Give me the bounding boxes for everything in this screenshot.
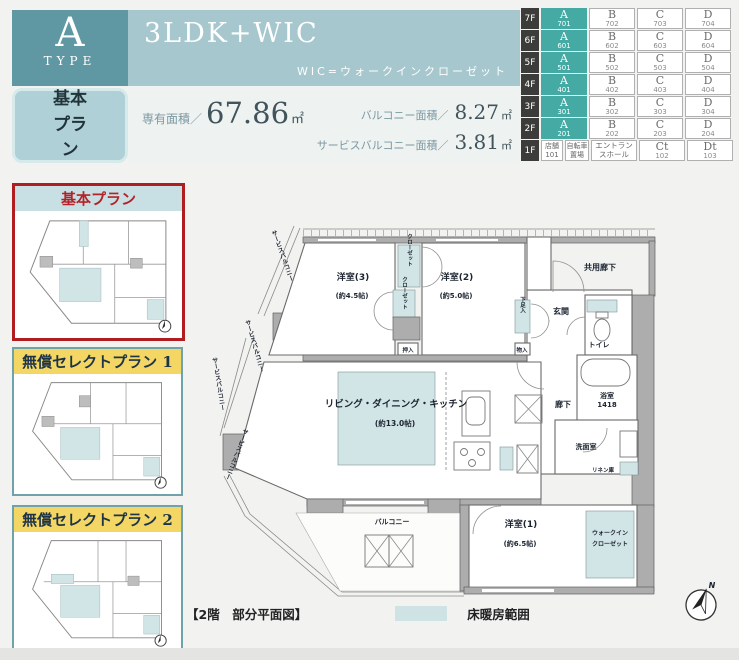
floor-row-6f: 6F A601 B602 C603 D604 xyxy=(521,30,733,51)
floor-label: 2F xyxy=(521,118,539,139)
unit-cell-a301[interactable]: A301 xyxy=(541,96,587,117)
exclusive-area-value: 67.86 xyxy=(206,96,289,130)
plan-select2-thumbnail xyxy=(14,532,181,652)
service-balcony-area-label: サービスバルコニー面積／ xyxy=(317,139,449,152)
title-banner: 3LDK+WIC WIC=ウォークインクローゼット xyxy=(128,10,520,86)
unit-cell-b402[interactable]: B402 xyxy=(589,74,635,95)
entrance-hall-cell: エントランスホール xyxy=(591,140,637,161)
plan-basic-thumbnail xyxy=(15,211,182,338)
compass-icon xyxy=(682,584,720,624)
exclusive-area-unit: ㎡ xyxy=(291,112,304,127)
unit-cell-dt103[interactable]: Dt103 xyxy=(687,140,733,161)
unit-cell-b702[interactable]: B702 xyxy=(589,8,635,29)
plan-select1-title: 無償セレクトプラン 1 xyxy=(14,349,181,374)
unit-cell-c703[interactable]: C703 xyxy=(637,8,683,29)
linen-label: リネン庫 xyxy=(592,466,615,474)
unit-cell-c303[interactable]: C303 xyxy=(637,96,683,117)
bath-size: 1418 xyxy=(597,401,617,409)
unit-cell-b602[interactable]: B602 xyxy=(589,30,635,51)
unit-cell-c403[interactable]: C403 xyxy=(637,74,683,95)
layout-title: 3LDK+WIC xyxy=(144,18,319,49)
compass-north-label: N xyxy=(709,581,716,590)
unit-cell-a501[interactable]: A501 xyxy=(541,52,587,73)
service-balcony-area-value: 3.81 xyxy=(454,130,499,154)
unit-cell-c603[interactable]: C603 xyxy=(637,30,683,51)
unit-cell-a701[interactable]: A701 xyxy=(541,8,587,29)
unit-cell-d504[interactable]: D504 xyxy=(685,52,731,73)
ldk-size: (約13.0帖) xyxy=(375,418,415,428)
unit-cell-d704[interactable]: D704 xyxy=(685,8,731,29)
type-letter: A xyxy=(12,10,128,56)
floor-row-7f: 7F A701 B702 C703 D704 xyxy=(521,8,733,29)
balcony-area-label: バルコニー面積／ xyxy=(361,109,449,122)
service-balcony-label: サービスバルコニー xyxy=(269,229,294,282)
area-info: 専有面積／67.86㎡ バルコニー面積／8.27㎡ サービスバルコニー面積／3.… xyxy=(128,86,520,163)
unit-cell-a601[interactable]: A601 xyxy=(541,30,587,51)
main-floorplan: N 共用廊下 洋室(3) (約4.5帖) 洋室(2) (約5.0帖) クローゼッ… xyxy=(196,216,739,636)
bath-label: 浴室 xyxy=(600,391,614,400)
floor-label: 1F xyxy=(521,140,539,161)
floor-row-3f: 3F A301 B302 C303 D304 xyxy=(521,96,733,117)
floor-heating-label: 床暖房範囲 xyxy=(467,604,530,623)
floor-row-4f: 4F A401 B402 C403 D404 xyxy=(521,74,733,95)
plan-badge: 基本プラン xyxy=(12,88,128,163)
service-balcony-area-unit: ㎡ xyxy=(501,139,512,152)
unit-cell-a401[interactable]: A401 xyxy=(541,74,587,95)
entrance-label: 玄関 xyxy=(553,306,569,316)
plan-select2-title: 無償セレクトプラン 2 xyxy=(14,507,181,532)
unit-cell-d404[interactable]: D404 xyxy=(685,74,731,95)
western1-size: (約6.5帖) xyxy=(504,539,537,548)
closet-label: クローゼット xyxy=(401,275,408,310)
mini-floorplan xyxy=(22,377,174,491)
legend-caption: 【2階 部分平面図】 xyxy=(186,604,307,623)
service-balcony-label: サービスバルコニー xyxy=(243,319,265,373)
western1-label: 洋室(1) xyxy=(505,518,538,530)
exclusive-area: 専有面積／67.86㎡ xyxy=(142,96,304,130)
mini-floorplan xyxy=(22,535,174,649)
western2-size: (約5.0帖) xyxy=(440,291,473,300)
unit-cell-d604[interactable]: D604 xyxy=(685,30,731,51)
floor-label: 5F xyxy=(521,52,539,73)
western3-label: 洋室(3) xyxy=(337,271,370,283)
balcony-area: バルコニー面積／8.27㎡ xyxy=(361,100,512,124)
western3-size: (約4.5帖) xyxy=(336,291,369,300)
floor-unit-table: 7F A701 B702 C703 D704 6F A601 B602 C603… xyxy=(521,8,733,162)
floor-label: 3F xyxy=(521,96,539,117)
unit-cell-b502[interactable]: B502 xyxy=(589,52,635,73)
ldk-label: リビング・ダイニング・キッチン xyxy=(325,398,468,410)
exclusive-area-label: 専有面積／ xyxy=(142,112,202,126)
plan-basic-title: 基本プラン xyxy=(15,186,182,211)
wic-label: クローゼット xyxy=(592,540,628,548)
unit-cell-b202[interactable]: B202 xyxy=(589,118,635,139)
type-box: A TYPE xyxy=(12,10,128,86)
sidebar-plan-select2[interactable]: 無償セレクトプラン 2 xyxy=(12,505,183,654)
plan-legend: 【2階 部分平面図】 床暖房範囲 xyxy=(186,604,530,623)
washroom-label: 洗面室 xyxy=(576,442,597,451)
toilet-label: トイレ xyxy=(589,341,610,349)
unit-cell-a201[interactable]: A201 xyxy=(541,118,587,139)
floor-heating-swatch xyxy=(395,606,447,621)
plan-select1-thumbnail xyxy=(14,374,181,494)
floor-row-1f: 1F 店舗101 自転車置場 エントランスホール Ct102 Dt103 xyxy=(521,140,733,161)
floor-label: 6F xyxy=(521,30,539,51)
unit-cell-c503[interactable]: C503 xyxy=(637,52,683,73)
unit-cell-d204[interactable]: D204 xyxy=(685,118,731,139)
sidebar-plan-select1[interactable]: 無償セレクトプラン 1 xyxy=(12,347,183,496)
type-word: TYPE xyxy=(12,54,128,68)
floor-row-2f: 2F A201 B202 C203 D204 xyxy=(521,118,733,139)
balcony-area-unit: ㎡ xyxy=(501,109,512,122)
balcony-label: バルコニー xyxy=(375,518,410,526)
floor-label: 4F xyxy=(521,74,539,95)
unit-cell-ct102[interactable]: Ct102 xyxy=(639,140,685,161)
footer-strip xyxy=(0,648,739,660)
common-corridor-label: 共用廊下 xyxy=(584,262,616,272)
floor-label: 7F xyxy=(521,8,539,29)
floorplan-page: A TYPE 基本プラン 3LDK+WIC WIC=ウォークインクローゼット 専… xyxy=(0,0,739,660)
plan-badge-label: 基本プラン xyxy=(50,87,90,164)
hallway-label: 廊下 xyxy=(555,399,571,409)
monoire-label: 物入 xyxy=(516,346,528,354)
service-balcony-area: サービスバルコニー面積／3.81㎡ xyxy=(317,130,512,154)
service-balcony-label: サービスバルコニー xyxy=(210,357,225,412)
wic-label: ウォークイン xyxy=(592,529,628,537)
mini-floorplan xyxy=(20,215,178,335)
western2-label: 洋室(2) xyxy=(441,271,474,283)
unit-cell-d304[interactable]: D304 xyxy=(685,96,731,117)
unit-cell-b302[interactable]: B302 xyxy=(589,96,635,117)
bicycle-cell: 自転車置場 xyxy=(565,140,589,161)
oshiire-label: 押入 xyxy=(402,346,414,354)
closet-label: クローゼット xyxy=(406,232,413,267)
sidebar-plan-basic[interactable]: 基本プラン xyxy=(12,183,185,341)
shop-cell: 店舗101 xyxy=(541,140,563,161)
wic-note: WIC=ウォークインクローゼット xyxy=(297,63,508,79)
floor-row-5f: 5F A501 B502 C503 D504 xyxy=(521,52,733,73)
balcony-area-value: 8.27 xyxy=(454,100,499,124)
unit-cell-c203[interactable]: C203 xyxy=(637,118,683,139)
